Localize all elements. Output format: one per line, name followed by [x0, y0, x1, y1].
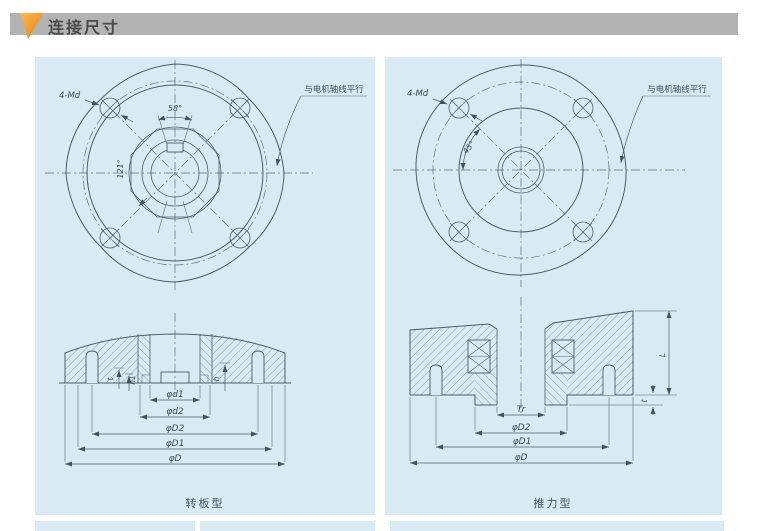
holes-count-label: 4-Md	[407, 89, 429, 99]
diameter-dimensions: Tr φD2 φD1 φD	[410, 397, 633, 463]
axis-parallel-note: 与电机轴线平行	[304, 84, 364, 95]
catalog-page: 连接尺寸	[0, 0, 761, 531]
table-cell-partial-2	[200, 521, 375, 531]
flange-top-view-thrust: 45° 4-Md 与电机轴线平行	[393, 59, 711, 287]
bearing-right	[552, 340, 574, 373]
accent-flag-icon	[18, 11, 46, 41]
bearing-left	[468, 340, 490, 373]
dim-d2-label: φd2	[166, 407, 184, 417]
dim-D-label: φD	[515, 453, 528, 463]
dim-D2-label: φD2	[512, 423, 531, 433]
section-header: 连接尺寸	[10, 13, 738, 35]
dim-d1-label: φd1	[166, 390, 183, 400]
section-view-thrust: Tr φD2 φD1 φD L t	[410, 297, 677, 463]
left-drawing: 58° 121° 4-Md 与电机轴线平行	[35, 57, 375, 515]
dim-D-label: φD	[169, 454, 182, 464]
dim-D2-label: φD2	[166, 424, 185, 434]
holes-count-label: 4-Md	[59, 91, 81, 101]
left-drawing-panel: 58° 121° 4-Md 与电机轴线平行	[35, 57, 375, 515]
dim-h1-label: h1	[128, 375, 137, 385]
table-cell-partial-1	[35, 521, 195, 531]
dim-D1-label: φD1	[513, 437, 532, 447]
dim-h-label: h	[212, 376, 221, 381]
left-caption: 转板型	[186, 496, 225, 510]
angle-top-label: 58°	[168, 104, 182, 113]
table-cell-partial-3	[390, 521, 724, 531]
page-title: 连接尺寸	[48, 14, 120, 38]
right-drawing: 45° 4-Md 与电机轴线平行	[385, 57, 722, 515]
section-view-rotary: t h1 h φd1 φd2 φD2 φD1	[59, 313, 291, 464]
dim-D1-label: φD1	[166, 439, 185, 449]
right-caption: 推力型	[534, 496, 573, 510]
dim-t-label: t	[640, 398, 649, 402]
diameter-dimensions: φd1 φd2 φD2 φD1 φD	[65, 385, 285, 464]
dim-L-label: L	[658, 353, 667, 357]
angle-side-label: 121°	[116, 159, 125, 178]
angle-label: 45°	[461, 139, 477, 156]
right-drawing-panel: 45° 4-Md 与电机轴线平行	[385, 57, 722, 515]
dim-Tr-label: Tr	[517, 405, 527, 415]
flange-top-view-rotary: 58° 121° 4-Md 与电机轴线平行	[45, 60, 367, 291]
axis-parallel-note: 与电机轴线平行	[647, 84, 707, 95]
